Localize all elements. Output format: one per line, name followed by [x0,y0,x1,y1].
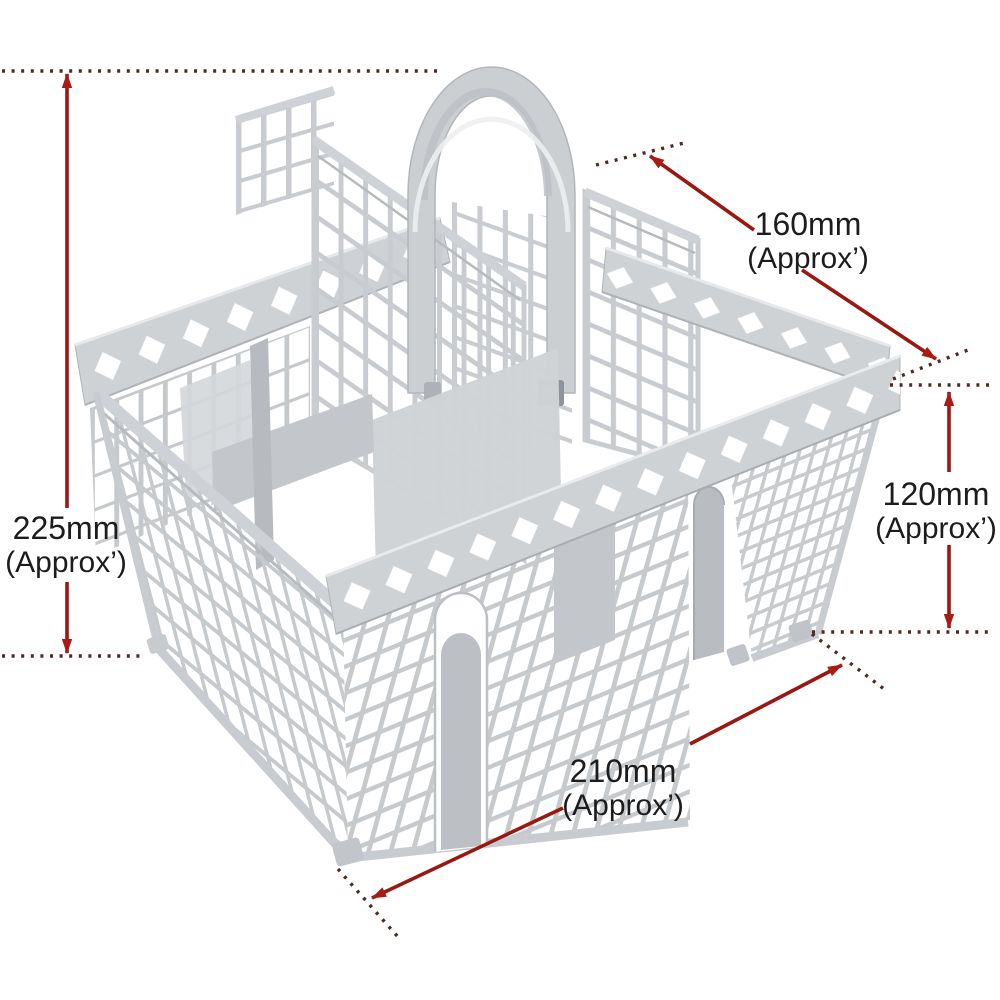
ext-line-width-right [812,634,884,689]
front-arch-opening [435,593,487,852]
dimension-qualifier: (Approx’) [747,242,869,275]
corner-pillar-front [441,633,481,850]
cutlery-basket-diagram [0,0,1000,1000]
dimension-qualifier: (Approx’) [562,789,684,822]
basket-illustration [75,67,900,867]
dimension-qualifier: (Approx’) [875,512,997,545]
dimension-label-depth: 160mm (Approx’) [747,207,869,275]
dimension-label-width: 210mm (Approx’) [562,754,684,822]
dimension-value: 210mm [562,754,684,789]
dimension-value: 225mm [5,511,127,546]
right-flap [585,192,698,470]
ext-line-width-left [338,869,398,937]
dimension-line-depth-upper [650,156,754,230]
dimension-value: 120mm [875,477,997,512]
dimension-qualifier: (Approx’) [5,546,127,579]
product-image: 225mm (Approx’) 160mm (Approx’) 120mm (A… [0,0,1000,1000]
corner-pillar-right [694,487,724,660]
ext-line-depth-left [596,142,688,165]
dimension-label-side-height: 120mm (Approx’) [875,477,997,545]
dimension-value: 160mm [747,207,869,242]
dimension-label-height: 225mm (Approx’) [5,511,127,579]
